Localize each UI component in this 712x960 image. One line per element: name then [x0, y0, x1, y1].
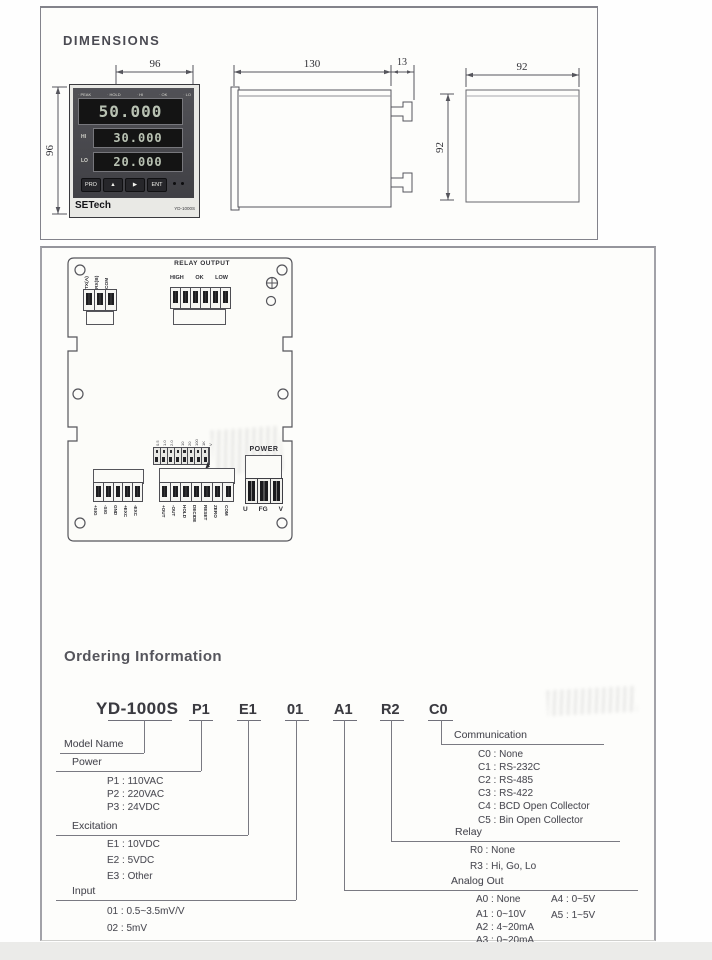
terminal-label-rxb: RX(B): [95, 261, 100, 289]
mounting-hole-icon: [75, 518, 85, 528]
terminal-label-decide: DECIDE: [192, 505, 197, 539]
io-terminal-block: [159, 482, 233, 502]
power-label-v: V: [279, 506, 283, 513]
order-code-input: 01: [287, 702, 303, 718]
group-label-model-name: Model Name: [64, 738, 124, 750]
connector-line: [248, 720, 249, 835]
rear-panel-ordering-section: TX(A) RX(B) COM RELAY OUTPUT HIGH OK LOW…: [40, 246, 656, 941]
relay-output-title: RELAY OUTPUT: [167, 260, 237, 267]
brand-logo: SETech: [75, 200, 111, 211]
group-line-power: [56, 771, 201, 772]
pro-button: PRO: [81, 178, 101, 192]
front-width-dim: 96: [144, 58, 166, 70]
right-button: ▶: [125, 178, 145, 192]
group-line-input: [56, 900, 296, 901]
jumper-pin-label: 1.0: [162, 428, 167, 446]
option-item: C3 : RS-422: [478, 788, 533, 799]
option-item: E2 : 5VDC: [107, 855, 154, 866]
option-item: E3 : Other: [107, 871, 153, 882]
power-terminal-screw: [245, 478, 258, 504]
power-label-fg: FG: [259, 506, 268, 513]
power-terminal-screw: [270, 478, 283, 504]
power-title: POWER: [244, 446, 284, 453]
group-label-input: Input: [72, 885, 95, 897]
jumper-pin-label: 1K: [201, 428, 206, 446]
side-depth-dim: 130: [298, 58, 326, 70]
option-item: A1 : 0~10V: [476, 909, 526, 920]
relay-block-base: [173, 309, 226, 325]
relay-terminal-block: [170, 287, 230, 309]
status-led-icon: [173, 182, 176, 185]
terminal-label-txa: TX(A): [85, 261, 90, 289]
indicator-ok: OK: [159, 92, 167, 97]
indicator-hi: HI: [137, 92, 143, 97]
jumper-pin: [195, 448, 202, 464]
relay-contact-labels: HIGH OK LOW: [170, 275, 228, 281]
option-item: R3 : Hi, Go, Lo: [470, 861, 536, 872]
power-label-u: U: [243, 506, 248, 513]
code-underline: [380, 720, 404, 721]
option-item: R0 : None: [470, 845, 515, 856]
group-line-model: [60, 753, 144, 754]
terminal-screw: [222, 482, 234, 502]
relay-label-ok: OK: [195, 275, 203, 281]
jumper-pin-label: 20: [187, 428, 192, 446]
terminal-label-com: COM: [105, 261, 110, 289]
signal-terminal-block: [93, 482, 142, 502]
code-underline: [237, 720, 261, 721]
ent-button: ENT: [147, 178, 167, 192]
group-label-analog: Analog Out: [451, 875, 504, 887]
jumper-pin: [202, 448, 209, 464]
group-label-excitation: Excitation: [72, 820, 118, 832]
jumper-pin: [168, 448, 175, 464]
order-code-analog: A1: [334, 702, 353, 718]
option-item: C4 : BCD Open Collector: [478, 801, 590, 812]
terminal-label-exc-plus: +EXC: [123, 505, 128, 531]
mounting-hole-icon: [73, 389, 83, 399]
main-display: 50.000: [78, 98, 183, 125]
front-panel-bezel: PEAK HOLD HI OK LO 50.000 HI 30.000 LO 2…: [73, 88, 194, 198]
terminal-label-io-com: COM: [224, 505, 229, 539]
hole-icon: [267, 297, 276, 306]
terminal-label-zero: ZERO: [213, 505, 218, 539]
connector-line: [344, 720, 345, 890]
order-code-model: YD-1000S: [96, 699, 178, 719]
side-height-dim: 92: [434, 136, 446, 160]
status-led-icon: [181, 182, 184, 185]
terminal-label-gnd: GND: [113, 505, 118, 531]
terminal-screw: [220, 287, 231, 309]
group-label-communication: Communication: [454, 729, 527, 741]
connector-line: [144, 720, 145, 753]
jumper-pin: [188, 448, 195, 464]
option-item: A2 : 4~20mA: [476, 922, 534, 933]
terminal-screw: [132, 482, 143, 502]
power-terminal-labels: U FG V: [243, 506, 283, 513]
lo-display-label: LO: [81, 158, 88, 164]
power-terminal-screw: [257, 478, 270, 504]
mounting-hole-icon: [277, 265, 287, 275]
option-item: P1 : 110VAC: [107, 776, 163, 787]
terminal-screw: [105, 289, 117, 311]
group-line-excitation: [56, 835, 248, 836]
dimensions-section: DIMENSIONS: [40, 6, 598, 240]
order-code-comm: C0: [429, 702, 448, 718]
terminal-label-exc-minus: -EXC: [133, 505, 138, 531]
group-line-communication: [441, 744, 604, 745]
front-height-dim: 96: [44, 139, 56, 163]
jumper-pin-label: 10: [180, 428, 185, 446]
indicator-row: PEAK HOLD HI OK LO: [78, 92, 191, 97]
option-item: C2 : RS-485: [478, 775, 533, 786]
option-item: E1 : 10VDC: [107, 839, 160, 850]
front-panel-view: PEAK HOLD HI OK LO 50.000 HI 30.000 LO 2…: [69, 84, 200, 218]
connector-line: [441, 720, 442, 744]
option-item: C5 : Bin Open Collector: [478, 815, 583, 826]
indicator-lo: LO: [183, 92, 191, 97]
connector-line: [296, 720, 297, 900]
serial-terminal-block: [83, 289, 116, 311]
print-bleed-smudge: [546, 686, 637, 717]
group-label-relay: Relay: [455, 826, 482, 838]
jumper-pin: [154, 448, 161, 464]
jumper-pin-label: 2.0: [169, 428, 174, 446]
hi-display-label: HI: [81, 134, 86, 140]
jumper-pin-block: [153, 447, 210, 465]
lo-display: 20.000: [93, 152, 183, 172]
order-code-relay: R2: [381, 702, 400, 718]
option-item: P2 : 220VAC: [107, 789, 164, 800]
datasheet-page: DIMENSIONS: [0, 0, 712, 960]
code-underline: [285, 720, 309, 721]
connector-line: [391, 720, 392, 841]
jumper-pin: [175, 448, 182, 464]
jumper-pin-label: 100: [194, 428, 199, 446]
hi-display: 30.000: [93, 128, 183, 148]
ground-screw-icon: [267, 278, 278, 289]
terminal-label-out-minus: -OUT: [171, 505, 176, 539]
serial-block-base: [86, 311, 114, 325]
page-bottom-strip: [0, 942, 712, 960]
relay-label-low: LOW: [215, 275, 228, 281]
jumper-pin-label: V: [208, 428, 213, 446]
group-line-analog: [344, 890, 638, 891]
ordering-title: Ordering Information: [64, 648, 222, 665]
terminal-label-out-plus: +OUT: [161, 505, 166, 539]
terminal-label-sig-minus: -SIG: [103, 505, 108, 531]
terminal-label-hold: HOLD: [182, 505, 187, 539]
up-button: ▲: [103, 178, 123, 192]
option-item: C0 : None: [478, 749, 523, 760]
jumper-pin-label: 0.5: [155, 428, 160, 446]
option-item: A0 : None: [476, 894, 520, 905]
option-item: P3 : 24VDC: [107, 802, 160, 813]
indicator-hold: HOLD: [107, 92, 121, 97]
option-item: A4 : 0~5V: [551, 894, 595, 905]
option-item: C1 : RS-232C: [478, 762, 540, 773]
relay-label-high: HIGH: [170, 275, 184, 281]
order-code-power: P1: [192, 702, 210, 718]
jumper-pin: [161, 448, 168, 464]
model-number: YD-1000S: [174, 206, 195, 211]
group-line-relay: [391, 841, 620, 842]
indicator-peak: PEAK: [78, 92, 91, 97]
connector-line: [201, 720, 202, 771]
power-terminal-block: [245, 478, 282, 504]
side-clip-dim: 13: [393, 57, 411, 68]
option-item: 01 : 0.5~3.5mV/V: [107, 906, 185, 917]
back-width-dim: 92: [509, 61, 535, 73]
mounting-hole-icon: [277, 518, 287, 528]
power-block-housing: [245, 455, 282, 480]
terminal-label-sig-plus: +SIG: [93, 505, 98, 531]
code-underline: [108, 720, 172, 721]
mounting-hole-icon: [278, 389, 288, 399]
mounting-hole-icon: [75, 265, 85, 275]
jumper-pin: [182, 448, 189, 464]
terminal-label-reset: RESET: [203, 505, 208, 539]
code-underline: [333, 720, 357, 721]
option-item: 02 : 5mV: [107, 923, 147, 934]
group-label-power: Power: [72, 756, 102, 768]
option-item: A5 : 1~5V: [551, 910, 595, 921]
order-code-excitation: E1: [239, 702, 257, 718]
